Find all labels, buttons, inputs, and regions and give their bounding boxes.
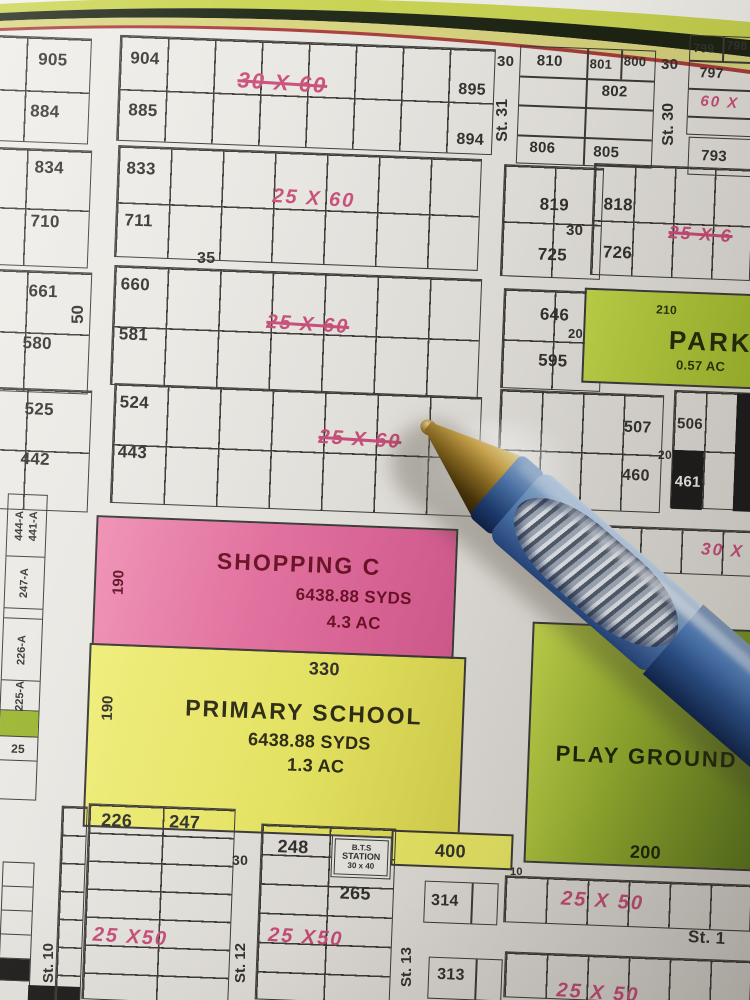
site-plan-photo: 905 884 904 885 895 894 30 X 60 30 St. 3… <box>0 0 750 1000</box>
shopping-center-block: 190 SHOPPING C 6438.88 SYDS 4.3 AC <box>92 515 459 660</box>
plot-number: 646 <box>540 305 570 326</box>
block-833: 833 711 25 X 60 <box>114 145 482 271</box>
park-dim: 210 <box>656 302 677 317</box>
block-661: 661 580 <box>0 268 92 395</box>
shopping-area-syds: 6438.88 SYDS <box>295 585 412 609</box>
block-314: 314 <box>423 881 499 926</box>
block-799: 799 798 797 60 X <box>686 35 750 138</box>
plot-number: 805 <box>593 143 620 161</box>
street-width: 30 <box>566 222 583 239</box>
bottom-left-strip <box>0 861 35 1000</box>
block-819: 819 725 <box>500 164 604 280</box>
block-248-265: 248 B.T.S STATION 30 x 40 265 25 X50 <box>255 823 397 1000</box>
plot-number: 799 <box>693 41 714 56</box>
plot-size-annotation: 30 X 60 <box>237 67 328 99</box>
plot-number: 226 <box>101 810 133 832</box>
plot-size-annotation: 25 X 60 <box>272 185 356 213</box>
sold-plot-cell <box>733 393 750 513</box>
plot-size-annotation: 25 X 6 <box>668 222 733 247</box>
block-904: 904 885 895 894 30 X 60 <box>116 35 496 155</box>
plot-number: 660 <box>120 274 150 295</box>
park-block: 210 PARK 0.57 AC <box>581 288 750 390</box>
plot-number: 444-A <box>13 510 26 540</box>
plot-number: 884 <box>30 101 60 122</box>
park-area: 0.57 AC <box>676 357 726 374</box>
plot-number: 314 <box>431 892 459 911</box>
plot-number: 313 <box>437 966 465 985</box>
street-name-st14: St. 1 <box>688 927 726 949</box>
plot-number: 226-A <box>15 634 28 664</box>
plot-number: 247-A <box>18 567 31 597</box>
block-660: 660 581 25 X 60 <box>110 265 482 399</box>
plot-number: 265 <box>339 883 371 905</box>
plot-number: 443 <box>117 442 147 463</box>
plot-number: 460 <box>622 467 650 486</box>
street-width: 20 <box>568 326 583 341</box>
street-width: 35 <box>197 250 215 268</box>
plot-number: 793 <box>701 147 728 165</box>
block-313: 313 <box>427 957 503 1000</box>
plot-size-annotation: 30 X <box>700 539 744 562</box>
shopping-dim: 190 <box>109 570 127 596</box>
green-cell <box>0 710 39 737</box>
plot-number: 806 <box>529 139 556 157</box>
block-905: 905 884 <box>0 34 92 145</box>
playground-dim: 200 <box>630 842 662 864</box>
plot-size-annotation: 25 X 60 <box>318 426 402 454</box>
plot-number: 834 <box>34 157 64 178</box>
school-dim-top: 330 <box>308 658 340 680</box>
plot-number: 801 <box>589 56 612 72</box>
street-width: 30 <box>497 53 514 70</box>
plot-number: 441-A <box>27 511 40 541</box>
plot-number: 506 <box>677 415 704 433</box>
shopping-area-ac: 4.3 AC <box>326 612 381 634</box>
plot-number: 819 <box>539 195 569 216</box>
primary-school-tab: 400 <box>390 830 513 871</box>
shopping-title: SHOPPING C <box>216 548 381 581</box>
plot-number: 661 <box>28 281 58 302</box>
street-name-st12: St. 12 <box>228 928 252 998</box>
school-title: PRIMARY SCHOOL <box>185 695 423 731</box>
plot-number: 802 <box>601 83 628 101</box>
plot-size-annotation: 25 X 50 <box>556 979 640 1000</box>
block-834: 834 710 <box>0 146 92 269</box>
plot-number: 225-A <box>14 680 27 710</box>
plot-number: 525 <box>24 399 54 420</box>
plot-size-annotation: 25 X 50 <box>560 887 644 915</box>
plot-number: 25 <box>11 741 25 756</box>
plot-number: 711 <box>124 210 153 231</box>
plot-number: 885 <box>128 100 158 121</box>
plot-number: 726 <box>602 242 632 263</box>
street-width: 30 <box>661 56 678 73</box>
plot-number: 904 <box>130 48 160 69</box>
plot-number: 595 <box>538 350 568 371</box>
school-area-ac: 1.3 AC <box>287 755 345 778</box>
school-dim-bottom: 400 <box>435 840 467 862</box>
street-width-50: 50 <box>66 298 90 330</box>
plot-number: 461 <box>674 473 701 491</box>
street-name-st13: St. 13 <box>394 932 418 1000</box>
bottom-right-row2: 25 X 50 <box>503 951 750 1000</box>
sold-plot-cell <box>0 958 30 981</box>
street-width: 30 <box>232 852 248 868</box>
block-506: 506 461 <box>670 390 750 512</box>
plot-number: 905 <box>38 50 68 71</box>
plot-size-annotation: 25 X50 <box>267 924 344 952</box>
plot-number: 725 <box>537 244 567 265</box>
bts-station-box: B.T.S STATION 30 x 40 <box>330 835 392 879</box>
street-name-st30: St. 30 <box>658 82 680 167</box>
plot-number: 580 <box>22 333 52 354</box>
block-226-247: 226 247 25 X50 <box>81 803 235 1000</box>
plot-number: 810 <box>536 52 563 70</box>
school-dim-left: 190 <box>98 696 116 722</box>
plot-size-annotation: 25 X 60 <box>266 311 350 339</box>
plot-number: 524 <box>119 392 149 413</box>
plot-number: 895 <box>458 81 486 100</box>
park-title: PARK <box>668 325 750 359</box>
plot-number: 800 <box>624 53 647 69</box>
street-width: 20 <box>658 448 672 462</box>
plot-number: 710 <box>30 211 60 232</box>
plot-number: 818 <box>603 194 633 215</box>
bts-line3: 30 x 40 <box>347 862 374 871</box>
bottom-right-row1: 25 X 50 <box>503 875 750 931</box>
plot-size-annotation: 60 X <box>700 93 740 112</box>
plot-number: 833 <box>126 158 156 179</box>
plot-number: 798 <box>726 38 747 53</box>
plot-number: 248 <box>277 836 309 858</box>
plot-number: 581 <box>118 324 148 345</box>
plot-number: 797 <box>699 64 724 81</box>
school-area-syds: 6438.88 SYDS <box>248 729 371 755</box>
block-810: 810 801 800 802 806 805 <box>516 45 656 168</box>
street-name-st31: St. 31 <box>492 78 514 163</box>
plot-number: 247 <box>169 811 201 833</box>
plot-number: 442 <box>20 449 50 470</box>
plot-number: 507 <box>624 419 652 438</box>
block-818: 818 726 25 X 6 <box>590 163 750 281</box>
left-strip: 444-A 441-A 247-A 226-A 225-A 25 <box>0 493 48 800</box>
plot-number: 894 <box>456 131 484 150</box>
plot-map: 905 884 904 885 895 894 30 X 60 30 St. 3… <box>0 0 750 1000</box>
plot-size-annotation: 25 X50 <box>92 924 169 952</box>
